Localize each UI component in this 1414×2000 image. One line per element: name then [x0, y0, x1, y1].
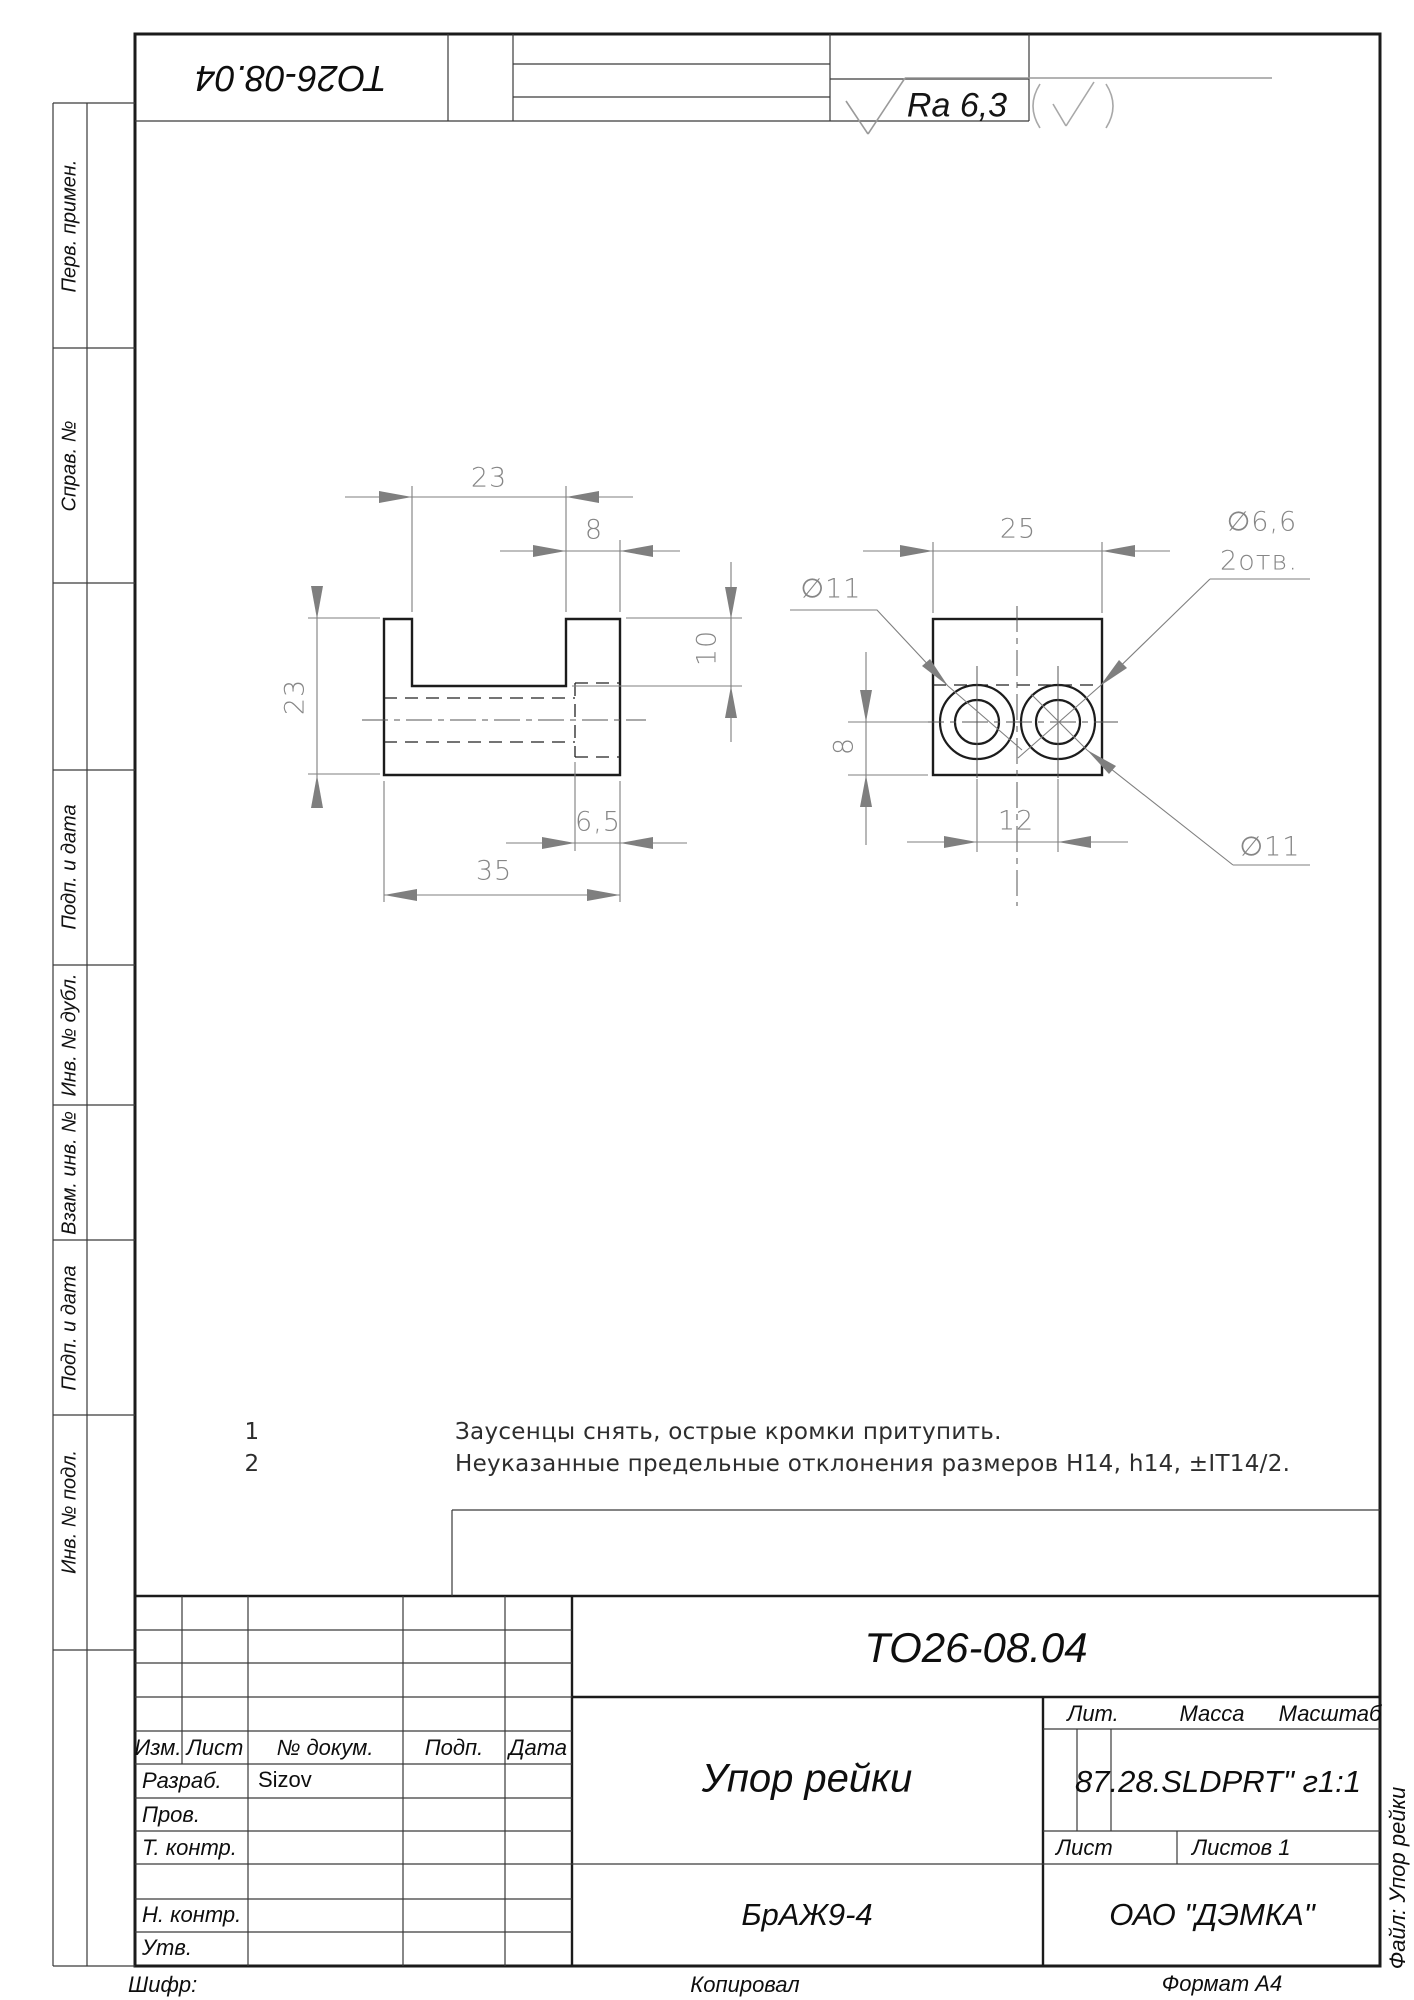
header-no-dokum: № докум. [277, 1735, 374, 1761]
margin-label-podp-data-1: Подп. и дата [59, 804, 82, 929]
margin-label-sprav-no: Справ. № [59, 421, 82, 512]
note-1-text: Заусенцы снять, острые кромки притупить. [455, 1419, 1002, 1445]
label-hole-diameter: ∅6,6 [1227, 507, 1297, 538]
label-cbore-right: ∅11 [1240, 832, 1301, 863]
header-massa: Масса [1179, 1701, 1244, 1727]
header-list: Лист [187, 1735, 244, 1761]
mass-scale-value: 87.28.SLDPRT" г1:1 [1075, 1764, 1361, 1800]
dim-wall-thickness: 8 [585, 515, 603, 546]
roughness-others-icon [1033, 82, 1113, 128]
dim-overall-width: 35 [476, 856, 512, 887]
header-data: Дата [509, 1735, 567, 1761]
company: ОАО "ДЭМКА" [1109, 1897, 1315, 1933]
developer-name: Sizov [258, 1767, 312, 1793]
roughness-value: Ra 6,3 [907, 87, 1007, 126]
row-utv: Утв. [142, 1935, 192, 1961]
note-1-number: 1 [245, 1419, 260, 1445]
footer-format: Формат А4 [1162, 1971, 1282, 1997]
drawing-geometry [0, 0, 1414, 2000]
part-name: Упор рейки [702, 1757, 913, 1802]
front-view-outline [384, 619, 620, 775]
side-view-centerlines [918, 606, 1118, 906]
sheets-label: Листов 1 [1192, 1835, 1290, 1861]
footer-file: Файл: Упор рейки [1385, 1787, 1411, 1969]
margin-label-perv-primen: Перв. примен. [59, 160, 82, 293]
margin-label-vzam-inv: Взам. инв. № [59, 1111, 82, 1235]
row-n-kontr: Н. контр. [142, 1902, 241, 1928]
corner-stamp-designation: ТО26-08.04 [195, 57, 386, 99]
dim-slot-depth: 10 [692, 630, 723, 666]
dim-side-width: 25 [1000, 514, 1036, 545]
sheet-frame [135, 34, 1380, 1966]
header-masshtab: Масштаб [1279, 1701, 1382, 1727]
row-t-kontr: Т. контр. [142, 1835, 237, 1861]
label-hole-quantity: 2отв. [1220, 546, 1298, 577]
dim-slot-width: 23 [471, 463, 507, 494]
drawing-sheet: ТО26-08.04 Ra 6,3 23 8 23 10 6,5 35 25 ∅… [0, 0, 1414, 2000]
dim-center-height: 8 [829, 737, 860, 755]
margin-label-inv-podl: Инв. № подл. [59, 1450, 82, 1574]
margin-label-inv-dubl: Инв. № дубл. [59, 974, 82, 1097]
row-razrab: Разраб. [142, 1768, 222, 1794]
header-lit: Лит. [1067, 1701, 1119, 1727]
note-2-text: Неуказанные предельные отклонения размер… [455, 1451, 1290, 1477]
front-view-arrowheads [311, 491, 737, 901]
front-view-dimensions [308, 486, 742, 902]
dim-cbore-depth: 6,5 [575, 807, 621, 838]
header-izm: Изм. [135, 1735, 182, 1761]
row-prov: Пров. [142, 1802, 200, 1828]
dim-height: 23 [280, 679, 311, 715]
label-cbore-left: ∅11 [801, 574, 862, 605]
footer-kopiroval: Копировал [690, 1972, 799, 1998]
title-designation: ТО26-08.04 [864, 1624, 1087, 1672]
dim-hole-pitch: 12 [998, 806, 1034, 837]
material: БрАЖ9-4 [741, 1897, 872, 1933]
header-podp: Подп. [425, 1735, 484, 1761]
sheet-label: Лист [1056, 1835, 1113, 1861]
margin-label-podp-data-2: Подп. и дата [59, 1265, 82, 1390]
side-view-arrowheads [860, 545, 1135, 848]
footer-shifr: Шифр: [128, 1972, 197, 1998]
note-2-number: 2 [245, 1451, 260, 1477]
